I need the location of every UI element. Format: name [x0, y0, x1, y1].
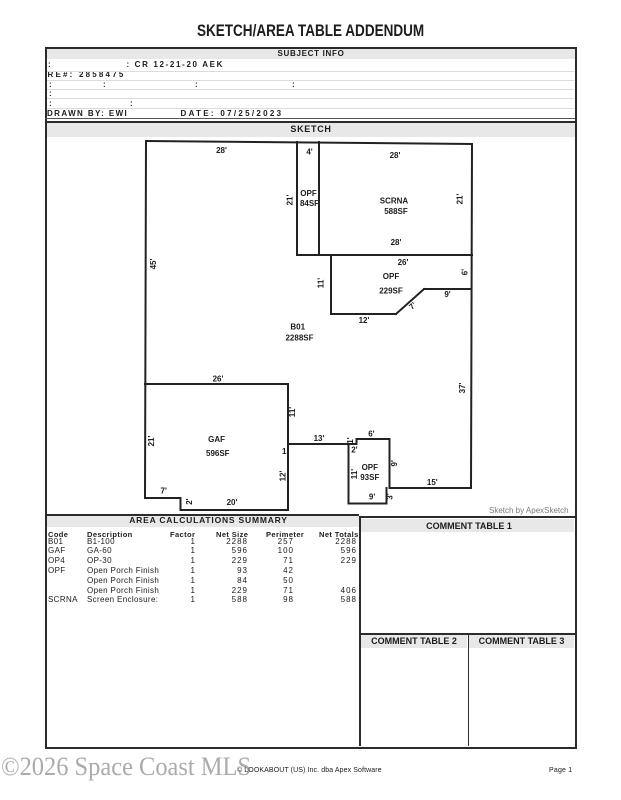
- svg-text:28': 28': [391, 238, 402, 247]
- svg-text:3': 3': [385, 493, 394, 499]
- svg-text:11': 11': [350, 469, 359, 479]
- svg-text:SCRNA: SCRNA: [380, 197, 409, 206]
- svg-text:2': 2': [185, 498, 194, 504]
- svg-text:84SF: 84SF: [300, 199, 319, 208]
- svg-text:1': 1': [282, 447, 288, 456]
- svg-text:2288SF: 2288SF: [285, 333, 313, 342]
- svg-text:21': 21': [456, 194, 465, 205]
- svg-text:6': 6': [461, 269, 470, 275]
- svg-text:B01: B01: [290, 323, 305, 332]
- svg-text:13': 13': [314, 434, 325, 443]
- svg-text:GAF: GAF: [208, 435, 225, 444]
- svg-text:6': 6': [368, 430, 374, 439]
- svg-text:9': 9': [444, 290, 450, 299]
- svg-text:12': 12': [278, 471, 287, 482]
- svg-text:2': 2': [351, 446, 357, 455]
- svg-text:21': 21': [147, 436, 156, 447]
- svg-text:12': 12': [359, 316, 370, 325]
- svg-text:4': 4': [306, 148, 312, 157]
- svg-text:OPF: OPF: [362, 463, 379, 472]
- svg-text:7': 7': [407, 300, 418, 311]
- svg-text:20': 20': [227, 498, 238, 507]
- svg-text:21': 21': [286, 195, 295, 206]
- svg-text:OPF: OPF: [383, 272, 400, 281]
- svg-text:93SF: 93SF: [360, 473, 379, 482]
- svg-text:26': 26': [398, 258, 409, 267]
- svg-text:596SF: 596SF: [206, 449, 230, 458]
- svg-text:26': 26': [213, 375, 224, 384]
- svg-text:1': 1': [346, 437, 355, 443]
- svg-text:37': 37': [458, 383, 467, 394]
- svg-text:11': 11': [317, 278, 326, 288]
- svg-text:OPF: OPF: [300, 189, 317, 198]
- svg-text:45': 45': [149, 259, 158, 270]
- svg-text:28': 28': [216, 146, 227, 155]
- svg-text:588SF: 588SF: [384, 207, 408, 216]
- svg-text:28': 28': [390, 151, 401, 160]
- svg-text:9': 9': [369, 493, 375, 502]
- svg-text:15': 15': [427, 478, 438, 487]
- svg-text:229SF: 229SF: [379, 286, 403, 295]
- svg-text:9': 9': [390, 460, 399, 466]
- svg-text:7': 7': [161, 487, 167, 496]
- svg-text:11': 11': [288, 407, 297, 417]
